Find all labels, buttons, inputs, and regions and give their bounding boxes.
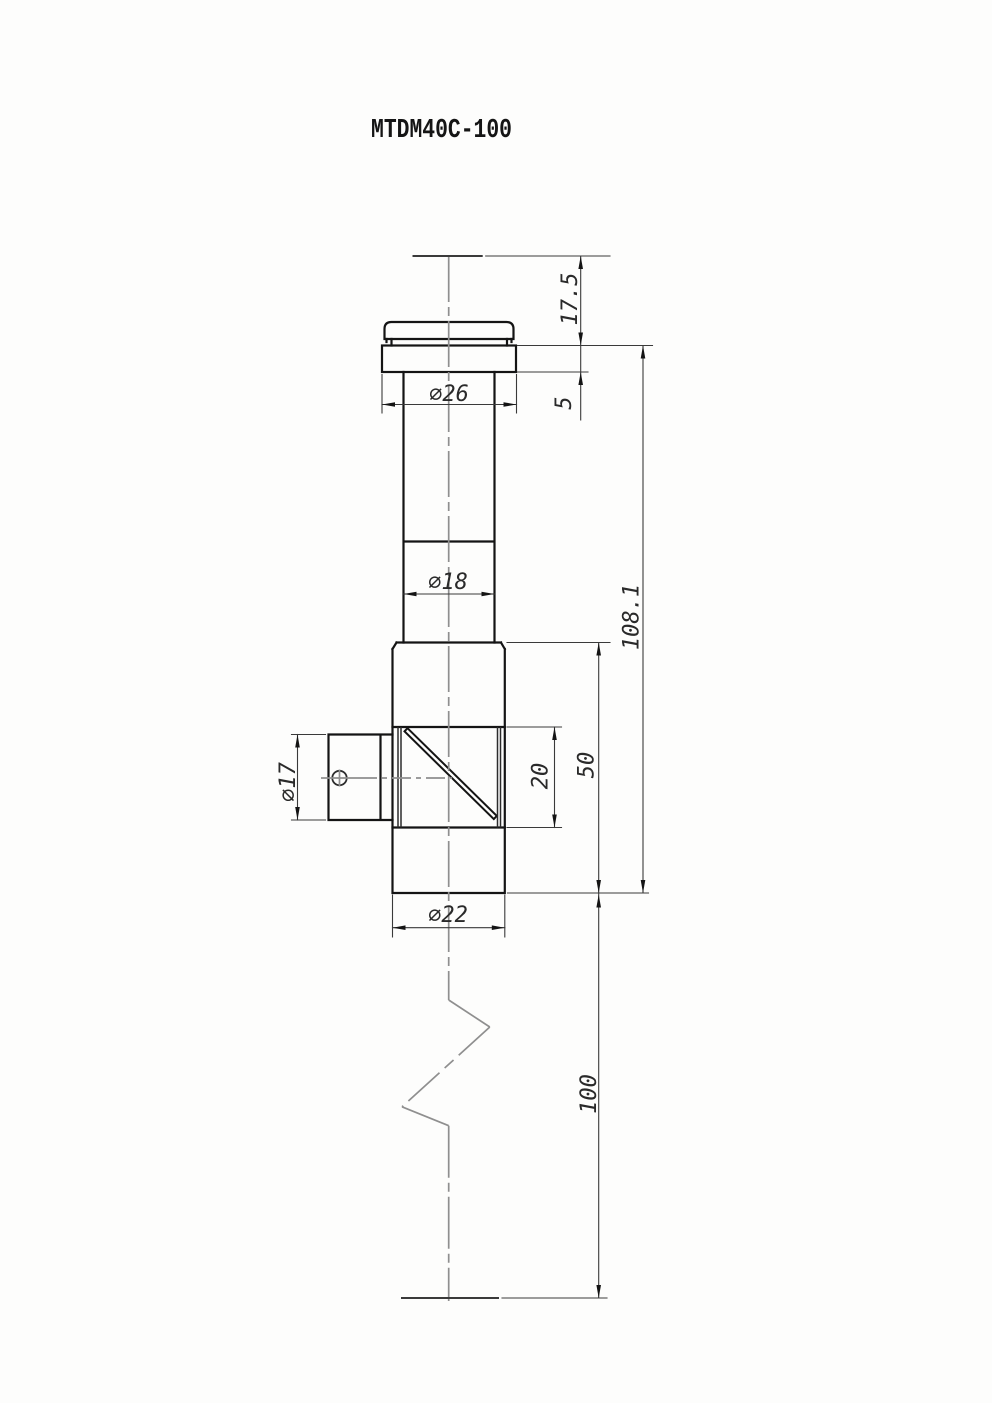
- part-outline: [329, 322, 517, 893]
- label-5: 5: [552, 396, 577, 409]
- arrow-17-5-up: [578, 256, 583, 269]
- label-dia18: ∅18: [428, 570, 468, 595]
- arrow-108-1-up: [641, 346, 646, 359]
- label-50: 50: [575, 752, 600, 779]
- arrow-dia26-left: [382, 402, 395, 407]
- labels: MTDM40C-100 17.5 5 ∅26 ∅18 ∅17 20 50 108…: [276, 116, 645, 1114]
- centerlines: [321, 256, 490, 1301]
- break-zigzag-bottom: [402, 1107, 449, 1126]
- technical-drawing: MTDM40C-100 17.5 5 ∅26 ∅18 ∅17 20 50 108…: [0, 0, 992, 1403]
- arrow-100-up: [596, 895, 601, 908]
- arrow-dia17-down: [295, 807, 300, 820]
- arrow-5-up: [578, 372, 583, 385]
- label-20: 20: [529, 763, 554, 790]
- label-dia17: ∅17: [276, 761, 301, 801]
- label-dia22: ∅22: [428, 903, 468, 928]
- arrow-17-5-down: [578, 333, 583, 346]
- label-108-1: 108.1: [620, 584, 645, 650]
- break-zigzag-middle: [402, 1027, 490, 1107]
- dim-17-5-and-5: [518, 256, 653, 420]
- label-dia26: ∅26: [429, 382, 469, 407]
- arrow-dia22-left: [393, 925, 406, 930]
- arrow-dia17-up: [295, 735, 300, 748]
- drawing-sheet: MTDM40C-100 17.5 5 ∅26 ∅18 ∅17 20 50 108…: [0, 0, 992, 1403]
- arrow-50-down: [596, 880, 601, 893]
- arrow-20-up: [552, 727, 557, 740]
- arrow-dia26-right: [504, 402, 517, 407]
- arrow-100-down: [596, 1285, 601, 1298]
- arrow-50-up: [596, 643, 601, 656]
- break-zigzag-top: [449, 1000, 490, 1027]
- mirror-prism: [405, 728, 497, 819]
- arrow-dia18-left: [404, 592, 417, 597]
- label-100: 100: [577, 1074, 602, 1114]
- label-17-5: 17.5: [558, 273, 583, 326]
- arrow-dia18-right: [482, 592, 495, 597]
- arrow-108-1-down: [641, 880, 646, 893]
- arrow-dia22-right: [492, 925, 505, 930]
- arrow-20-down: [552, 815, 557, 828]
- drawing-title: MTDM40C-100: [371, 116, 512, 146]
